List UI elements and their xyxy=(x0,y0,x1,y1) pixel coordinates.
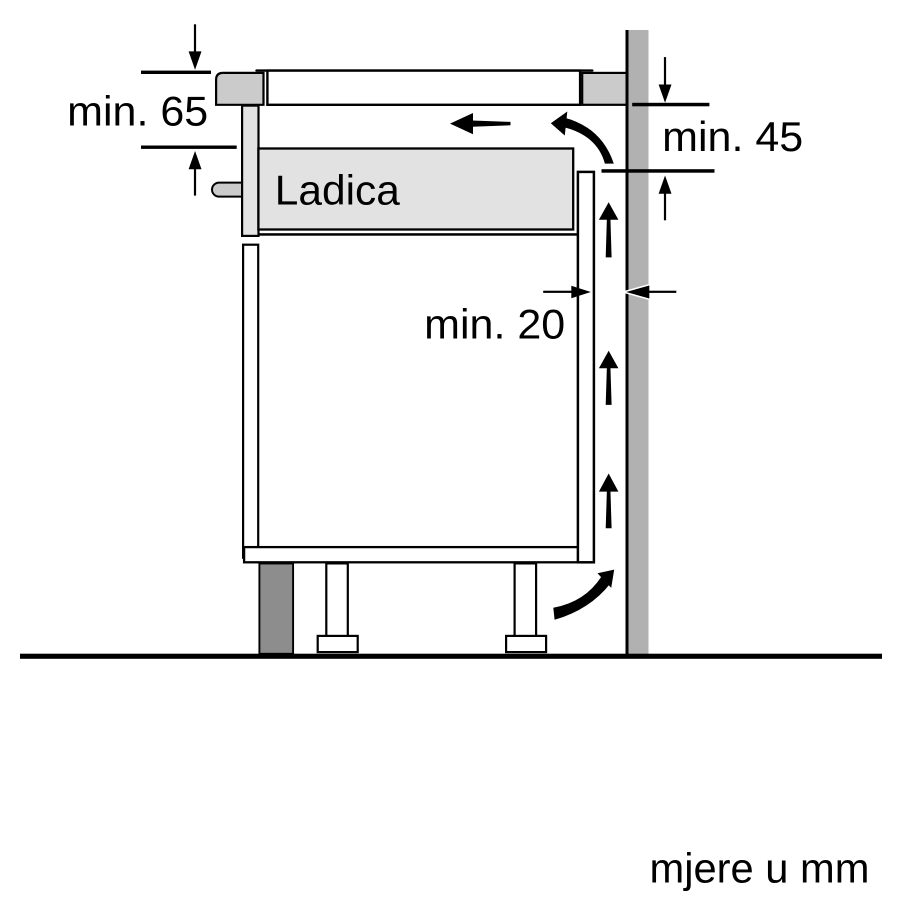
svg-text:min. 20: min. 20 xyxy=(424,300,565,347)
svg-text:mjere u mm: mjere u mm xyxy=(650,845,870,892)
svg-text:min. 45: min. 45 xyxy=(662,113,803,160)
svg-text:Ladica: Ladica xyxy=(275,167,401,214)
svg-text:min. 65: min. 65 xyxy=(67,88,208,135)
